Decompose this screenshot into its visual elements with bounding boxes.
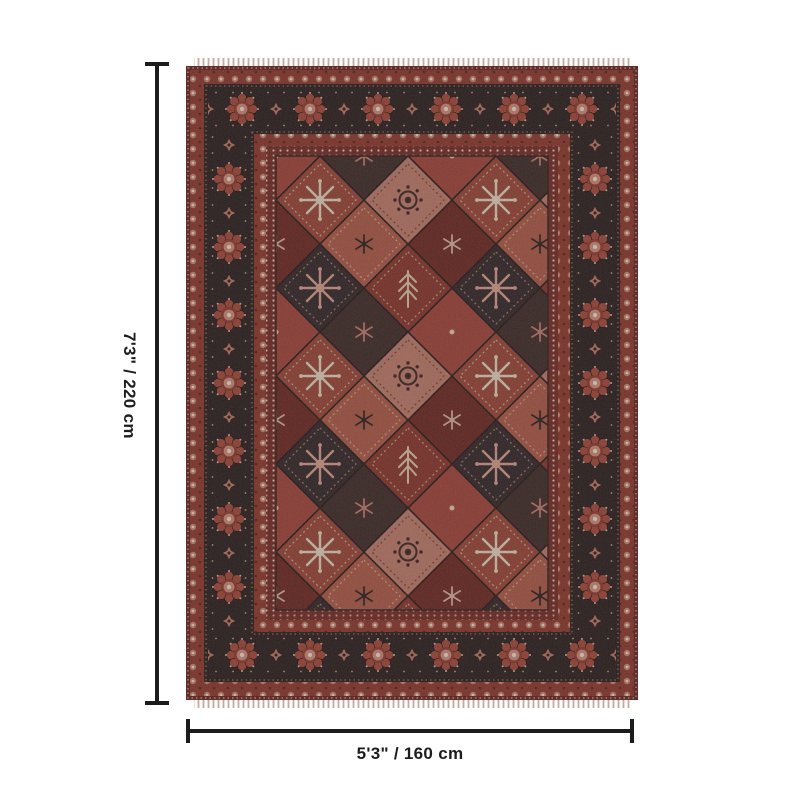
width-dimension-label: 5'3" / 160 cm [186,744,634,764]
dimension-cap-right [630,719,634,743]
product-dimension-image: 7'3" / 220 cm [0,0,800,800]
height-dimension-line [155,62,159,705]
width-dimension-line [186,729,634,733]
height-dimension-label: 7'3" / 220 cm [117,293,141,477]
dimension-cap-bottom [145,701,169,705]
dimension-cap-left [186,719,190,743]
dimension-cap-top [145,62,169,66]
rug-body [186,66,638,700]
rug-image [186,58,638,708]
